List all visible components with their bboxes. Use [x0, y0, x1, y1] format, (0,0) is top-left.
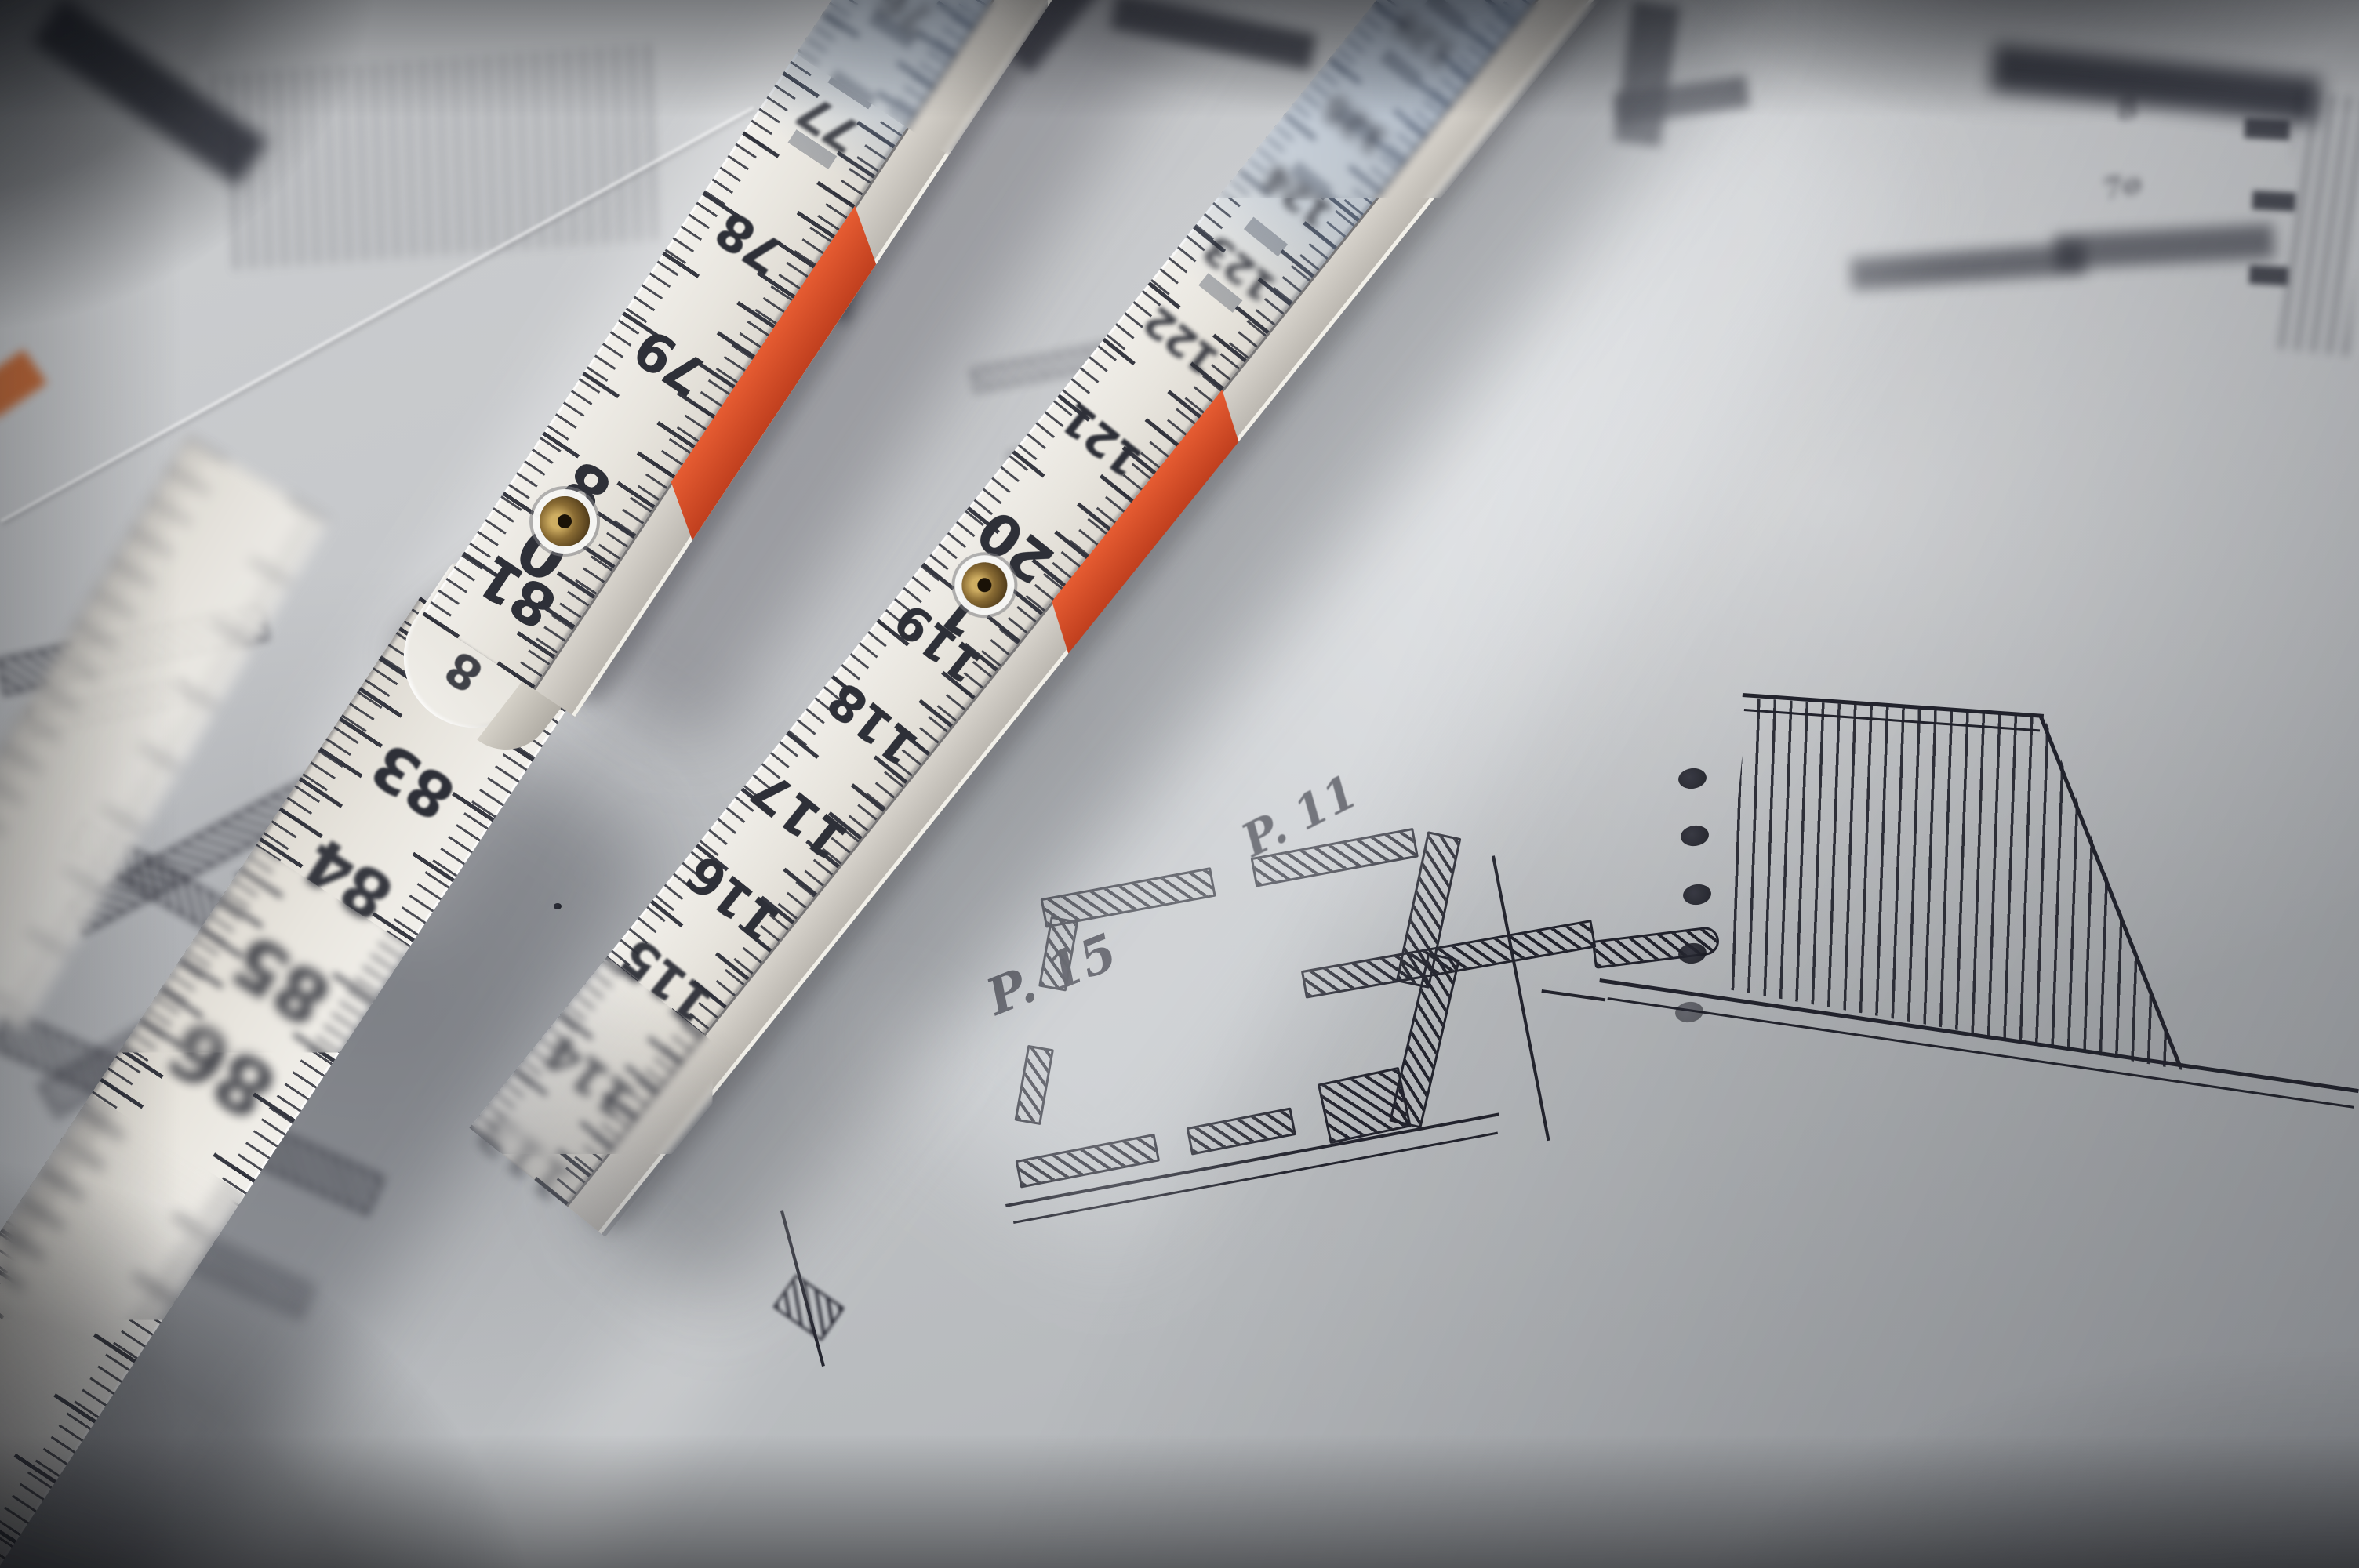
plan-blurred-wall — [2252, 191, 2295, 212]
photo-scene: P. 15P. 11P. 187o 83848586 7677787980818 — [0, 0, 2359, 1568]
plan-blurred-wall — [2244, 118, 2290, 140]
plan-blurred-wall — [2248, 265, 2288, 286]
plan-courtyard-far — [213, 44, 664, 270]
